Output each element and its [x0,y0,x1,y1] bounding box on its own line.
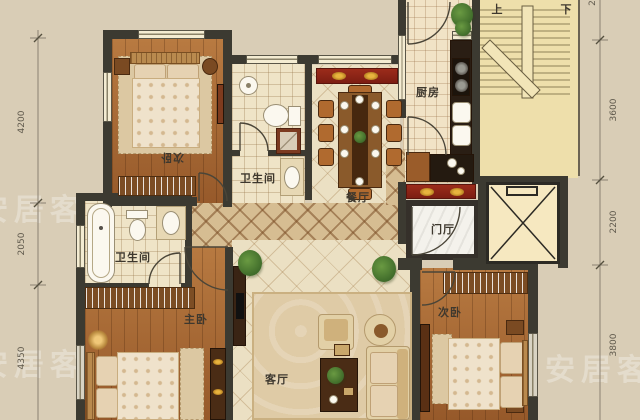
dim-right-3800: 3800 [609,330,619,360]
plate [457,167,465,175]
nightstand [506,320,524,335]
room-label-living: 客厅 [253,371,301,387]
bed [132,78,200,148]
stairs-down-label: 下 [558,1,574,17]
window [528,333,538,397]
table-plant [354,131,366,143]
tv-cabinet [420,324,430,412]
tv [236,293,244,319]
plate [371,149,380,158]
nightstand [114,58,130,75]
wall [578,0,580,176]
wall [305,55,312,200]
window [76,345,85,400]
wall [528,268,538,333]
room-label-entry: 门厅 [420,221,466,237]
bathtub [87,203,115,283]
window [246,55,298,64]
wardrobe [85,287,195,309]
burner [455,79,468,92]
room-label-bath-top: 卫生间 [230,170,286,186]
wall [398,182,406,244]
room-label-bath-mid: 卫生间 [105,249,161,265]
sideboard [316,68,398,84]
wall [103,30,138,39]
bed-headboard [522,340,528,406]
wall [76,400,85,420]
plant [455,20,471,36]
plate [340,149,349,158]
room-label-bedroom-top: 次卧 [146,150,198,166]
kitchen-counter [430,154,474,182]
wall [185,201,192,288]
wardrobe [118,176,196,196]
wall [76,193,85,225]
chair [386,100,402,118]
pillow [96,388,118,418]
dim-left-2050: 2050 [17,229,27,259]
wall [232,150,240,156]
dim-top-right-partial: 2 [588,0,598,13]
plate [371,125,380,134]
dresser [210,348,226,420]
plate [340,101,349,110]
lamp [88,330,108,350]
watermark: 安居客 [0,340,86,384]
pillow [500,342,524,374]
shower [276,128,301,154]
dim-right-3600: 3600 [609,95,619,125]
gold-decor [332,72,346,80]
wall [223,55,246,64]
bed [117,352,179,420]
plant [372,256,396,282]
gold-decor [364,72,378,80]
entry-console [406,184,476,199]
wall [76,268,85,345]
bed-headboard [86,352,95,420]
tray [343,387,354,396]
chair [386,148,402,166]
pillow [96,356,118,386]
toilet-tank [126,210,148,219]
chair [318,124,334,142]
plate [371,101,380,110]
shower-glass [280,132,297,150]
bathtub-inner [92,208,110,278]
plant [238,250,262,276]
cup [329,395,338,404]
watermark: 安居客 [545,345,640,389]
toilet-tank [288,106,301,126]
elevator-door [506,186,538,196]
stove [452,58,470,96]
kitchen-sink [452,102,471,123]
coffee-table [320,358,358,412]
decor [213,359,223,365]
burner [455,62,468,75]
plate [355,95,364,104]
cushion [324,319,348,341]
watermark: 安居客 [0,185,86,229]
rug [180,348,204,420]
kitchen-sink [452,125,471,146]
plate [447,158,457,168]
nightstand [202,58,218,75]
pillow [500,376,524,408]
sofa-back [397,349,408,419]
window [76,225,85,268]
dim-left-4200: 4200 [17,107,27,137]
window [318,55,392,64]
wall [225,247,233,420]
wall [398,0,406,35]
seat-cushion [370,385,398,417]
round-chair [364,314,396,346]
cabinet [217,84,224,124]
tv-cabinet [233,266,246,346]
bed [448,338,500,410]
window [103,72,112,122]
chair [318,148,334,166]
cabinet [406,152,430,182]
dim-right-2200: 2200 [609,207,619,237]
room-label-kitchen: 厨房 [404,84,452,100]
decor [213,389,223,395]
floor-plan: 安居客 安居客 安居客 [0,0,640,420]
ottoman [334,344,350,356]
plate [340,125,349,134]
wall [528,397,538,420]
toilet [129,219,146,241]
stairs-up-label: 上 [489,1,505,17]
sofa [366,346,410,420]
gold-decor [420,188,434,196]
room-label-master: 主卧 [172,311,220,327]
washing-machine-dot [246,83,251,88]
bed-headboard [130,52,200,64]
gold-decor [450,188,464,196]
dim-left-4350: 4350 [17,343,27,373]
room-label-dining: 餐厅 [334,189,382,205]
room-label-bedroom-bottom: 次卧 [426,304,474,320]
wardrobe [443,272,528,294]
seat-cushion [370,352,398,384]
sink [162,211,180,235]
plate [355,177,364,186]
window [138,30,205,39]
toilet [263,104,289,127]
table-plant [327,367,344,384]
stairwell-floor [478,0,578,178]
chair [318,100,334,118]
drain [99,226,103,230]
cushion [374,324,388,338]
chair [386,124,402,142]
sink [284,166,300,189]
